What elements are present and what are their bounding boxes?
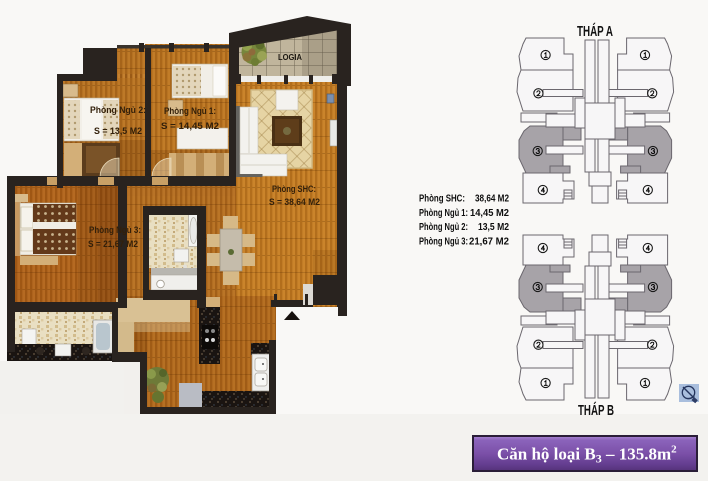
svg-text:Phòng Ngủ 2:: Phòng Ngủ 2: (419, 222, 468, 233)
svg-text:Phòng SHC:: Phòng SHC: (272, 184, 316, 195)
svg-text:THÁP A: THÁP A (577, 23, 613, 40)
svg-text:Phòng Ngủ 3:: Phòng Ngủ 3: (89, 225, 141, 236)
svg-text:Phòng Ngủ 1:: Phòng Ngủ 1: (419, 208, 468, 219)
svg-text:LOGIA: LOGIA (278, 53, 302, 62)
svg-text:S = 38,64 M2: S = 38,64 M2 (269, 197, 320, 208)
svg-text:38,64 M2: 38,64 M2 (475, 194, 509, 205)
svg-text:S = 14,45 M2: S = 14,45 M2 (161, 121, 219, 132)
svg-text:21,67 M2: 21,67 M2 (469, 236, 509, 247)
svg-text:Căn hộ loại B3 – 135.8m2: Căn hộ loại B3 – 135.8m2 (497, 444, 677, 466)
svg-text:Phòng SHC:: Phòng SHC: (419, 194, 465, 205)
svg-text:Phòng Ngủ 2:: Phòng Ngủ 2: (90, 105, 146, 116)
svg-text:14,45 M2: 14,45 M2 (470, 208, 509, 219)
svg-text:THÁP B: THÁP B (578, 402, 614, 419)
svg-text:S = 13,5 M2: S = 13,5 M2 (94, 126, 142, 137)
svg-text:13,5 M2: 13,5 M2 (478, 222, 509, 233)
svg-text:Phòng Ngủ 1:: Phòng Ngủ 1: (164, 106, 216, 117)
svg-text:Phòng Ngủ 3:: Phòng Ngủ 3: (419, 236, 468, 247)
svg-text:S = 21,67 M2: S = 21,67 M2 (88, 239, 138, 250)
